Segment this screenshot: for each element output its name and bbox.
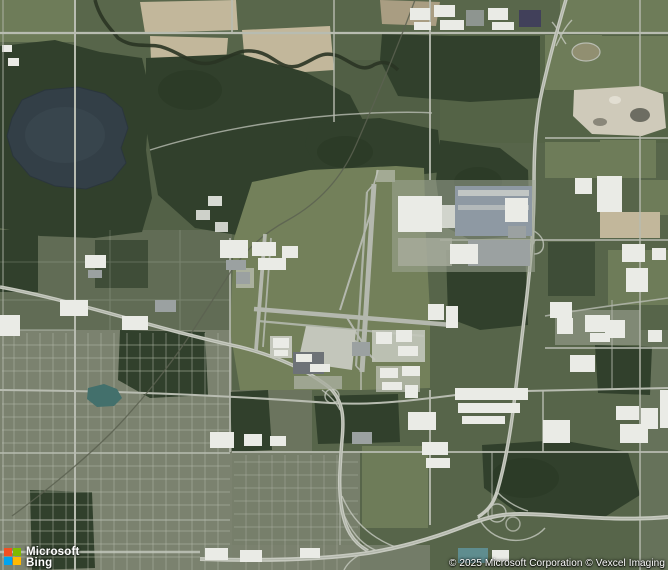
map-viewport[interactable]: Microsoft Bing © 2025 Microsoft Corporat…: [0, 0, 668, 570]
copyright-attribution: © 2025 Microsoft Corporation © Vexcel Im…: [449, 558, 665, 569]
bing-logo-text: Microsoft Bing: [26, 547, 80, 568]
solar-array: [519, 10, 541, 27]
logo-line-microsoft: Microsoft: [26, 547, 80, 558]
track-oval: [572, 43, 600, 61]
aerial-imagery: [0, 0, 668, 570]
bing-logo[interactable]: Microsoft Bing: [4, 547, 80, 568]
logo-line-bing: Bing: [26, 558, 80, 569]
microsoft-logo-icon: [4, 548, 21, 565]
quarry: [573, 86, 666, 136]
